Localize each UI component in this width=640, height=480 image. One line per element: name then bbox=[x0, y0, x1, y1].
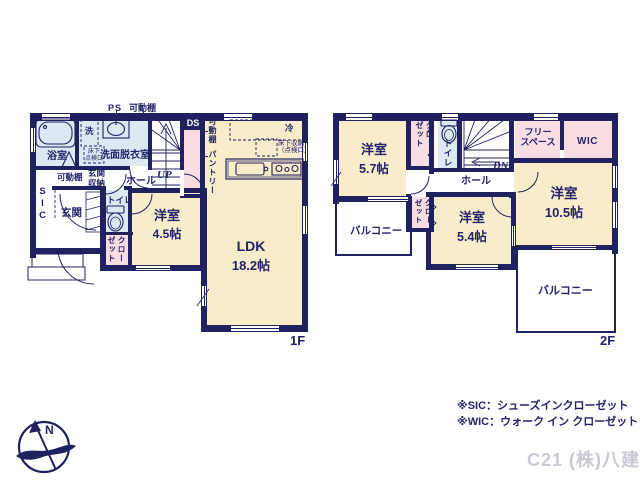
hall-label-1f: ホール bbox=[126, 176, 156, 188]
closet2a-label: クローゼット bbox=[414, 121, 434, 149]
toilet-icon-1f bbox=[107, 206, 124, 231]
wic-label: WIC bbox=[577, 136, 598, 148]
leader-line bbox=[203, 131, 208, 132]
room54-label: 洋室 5.4帖 bbox=[442, 211, 502, 244]
bathtub-icon bbox=[36, 119, 75, 147]
fridge-label: 冷 bbox=[285, 124, 294, 134]
room54-size: 5.4帖 bbox=[442, 230, 502, 244]
entry-storage-shelf bbox=[86, 192, 101, 232]
freespace-label-2: スペース bbox=[516, 137, 560, 147]
freespace-label: フリー スペース bbox=[516, 127, 560, 148]
up-label: UP bbox=[157, 169, 172, 182]
room45-size: 4.5帖 bbox=[137, 228, 197, 242]
balcony-left-label: バルコニー bbox=[350, 225, 402, 237]
kitchen-counter-icon bbox=[226, 159, 303, 179]
room54-name: 洋室 bbox=[442, 211, 502, 226]
floor1-tag: 1F bbox=[290, 334, 305, 349]
floor-storage-label: 床下収納 （点検口） bbox=[278, 140, 311, 155]
compass-north-letter: N bbox=[45, 423, 54, 437]
company-watermark: C21 (株)八建 bbox=[527, 446, 640, 472]
washroom-label: 洗面脱衣室 bbox=[100, 150, 150, 162]
entry-shelf-label: 可動棚 bbox=[57, 173, 83, 183]
room57-name: 洋室 bbox=[344, 143, 404, 158]
closet2b-label: クローゼット bbox=[413, 199, 433, 225]
entry-label: 玄関 bbox=[61, 207, 82, 219]
pantry-shelf-label: 可動棚 bbox=[207, 117, 217, 147]
room105-name: 洋室 bbox=[530, 186, 598, 202]
room105-size: 10.5帖 bbox=[530, 206, 598, 221]
leader-line bbox=[143, 111, 144, 115]
closet-label-1f: クローゼット bbox=[106, 236, 126, 264]
sic-note: ※SIC：シューズインクローゼット bbox=[457, 400, 628, 413]
leader-line bbox=[116, 111, 117, 115]
toilet-label-1f: トイレ bbox=[107, 196, 133, 206]
entry-storage-label-2: 収納 bbox=[88, 179, 105, 189]
room57-size: 5.7帖 bbox=[344, 162, 404, 176]
balcony-right-label: バルコニー bbox=[538, 285, 593, 298]
pantry-label: パントリー bbox=[207, 150, 217, 198]
room105-label: 洋室 10.5帖 bbox=[530, 186, 598, 220]
ldk-size: 18.2帖 bbox=[215, 259, 287, 274]
room45-name: 洋室 bbox=[137, 209, 197, 224]
leader-line bbox=[203, 156, 208, 157]
floor-storage-hatch bbox=[256, 139, 277, 156]
ldk-label: LDK 18.2帖 bbox=[215, 238, 287, 274]
ldk-name: LDK bbox=[215, 238, 287, 254]
window-mark bbox=[197, 289, 209, 306]
wic-note: ※WIC：ウォーク イン クローゼット bbox=[457, 416, 638, 429]
compass-icon: N bbox=[14, 416, 78, 480]
porch-steps bbox=[28, 254, 85, 280]
floor-plan-canvas: DS bbox=[0, 0, 640, 480]
washbasin-icon bbox=[103, 119, 129, 138]
dn-label: DN bbox=[493, 161, 508, 173]
freespace-label-1: フリー bbox=[516, 127, 560, 137]
ps-label: PS bbox=[108, 103, 122, 113]
sic-label: SIC bbox=[37, 186, 47, 222]
bathroom-label: 浴室 bbox=[47, 151, 67, 163]
toilet-label-2f: トイレ bbox=[443, 139, 453, 169]
washer-label: 洗 bbox=[85, 127, 94, 137]
window-mark bbox=[331, 172, 341, 186]
room57-label: 洋室 5.7帖 bbox=[344, 143, 404, 176]
entry-storage-label: 玄関 収納 bbox=[88, 169, 105, 189]
floor-storage-label-2: （点検口） bbox=[278, 147, 311, 154]
hall-label-2f: ホール bbox=[461, 176, 491, 188]
room45-label: 洋室 4.5帖 bbox=[137, 209, 197, 242]
floor2-tag: 2F bbox=[600, 334, 615, 349]
